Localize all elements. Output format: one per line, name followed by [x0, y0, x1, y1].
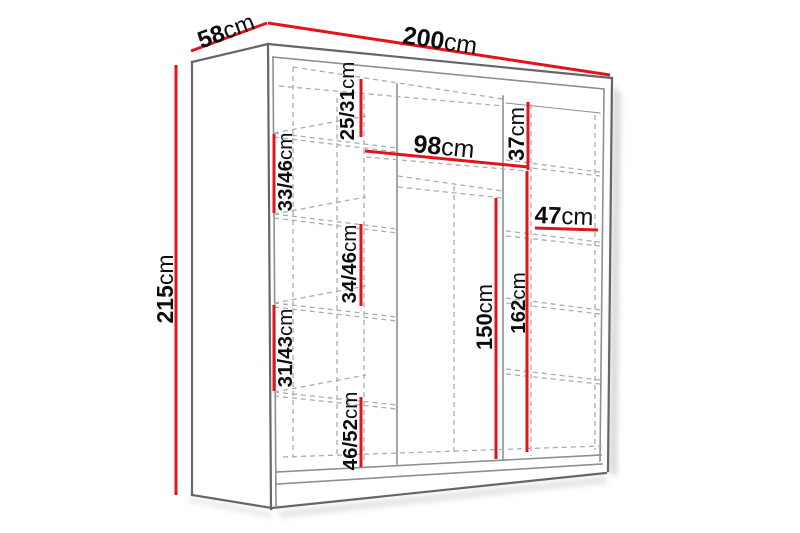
dim-label-left-middle-gap: 34/46cm — [338, 225, 361, 304]
diagram-canvas: 200cm 58cm 215cm 25/31cm 33/46cm 98cm 37… — [0, 0, 800, 533]
dim-label-height: 215cm — [152, 254, 178, 323]
dim-label-left-upper-gap: 33/46cm — [274, 133, 297, 212]
dim-label-top-shelf-width: 98cm — [412, 130, 476, 164]
dim-label-left-top-gap: 25/31cm — [336, 62, 359, 141]
wardrobe-dimensions-diagram: 200cm 58cm 215cm 25/31cm 33/46cm 98cm 37… — [0, 0, 800, 533]
dim-label-left-bottom-gap: 46/52cm — [339, 392, 362, 471]
dim-label-interior-height-right: 162cm — [507, 272, 530, 334]
dim-label-right-shelf-width: 47cm — [534, 201, 594, 230]
dim-label-hanging-height: 150cm — [472, 284, 497, 350]
dim-label-right-top-gap: 37cm — [504, 107, 529, 161]
dim-label-left-lower-gap: 31/43cm — [274, 309, 297, 388]
